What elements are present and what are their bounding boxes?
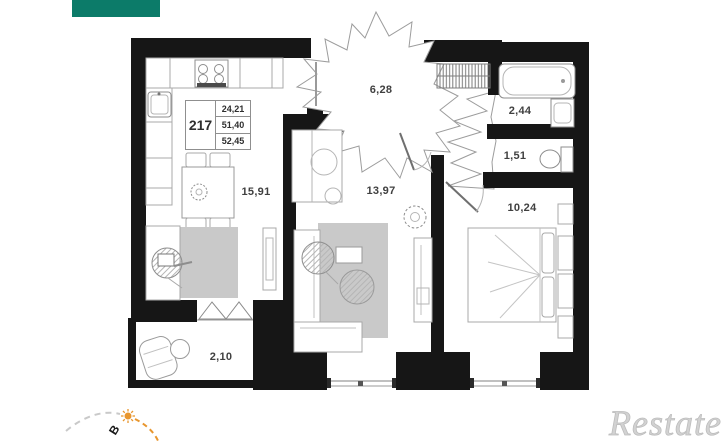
- pouf: [340, 270, 374, 304]
- radiator-kitchen: [263, 228, 276, 290]
- unit-areas: 24,21 51,40 52,45: [216, 101, 250, 149]
- watermark: Restate: [609, 402, 722, 444]
- area-row: 24,21: [216, 101, 250, 117]
- room-label-balcony: 2,10: [210, 351, 233, 363]
- teal-swatch[interactable]: [72, 0, 160, 17]
- french-door-balcony: [197, 302, 253, 320]
- room-label-bathroom: 2,44: [509, 105, 532, 117]
- area-row: 51,40: [216, 117, 250, 133]
- area-row: 52,45: [216, 134, 250, 149]
- floorplan-canvas: 217 24,21 51,40 52,45 6,28 2,44 1,51 10,…: [0, 0, 725, 444]
- room-label-living-room: 13,97: [366, 185, 395, 197]
- dining-set: [182, 153, 234, 232]
- room-label-kitchen-living: 15,91: [241, 186, 270, 198]
- bath-sink: [551, 99, 574, 127]
- double-bed: [468, 228, 556, 322]
- room-label-hallway: 6,28: [370, 84, 393, 96]
- window-bedroom: [470, 352, 540, 390]
- plant: [404, 206, 426, 228]
- shelf-living: [414, 238, 432, 322]
- room-label-bedroom: 10,24: [507, 202, 536, 214]
- balcony-table: [171, 340, 190, 359]
- window-living: [327, 352, 396, 390]
- floorplan-drawing: [0, 0, 725, 444]
- closet-hatch: [437, 64, 490, 88]
- lounge-chair: [137, 334, 180, 382]
- stove: [195, 60, 228, 87]
- unit-number: 217: [186, 101, 216, 149]
- wardrobe: [292, 130, 342, 204]
- bedside-modules: [558, 204, 573, 338]
- room-label-wc: 1,51: [504, 150, 527, 162]
- bathtub: [499, 64, 575, 98]
- toilet: [540, 147, 573, 172]
- kitchen-sink: [148, 92, 171, 117]
- sun-icon: [121, 409, 135, 423]
- unit-info-box: 217 24,21 51,40 52,45: [185, 100, 251, 150]
